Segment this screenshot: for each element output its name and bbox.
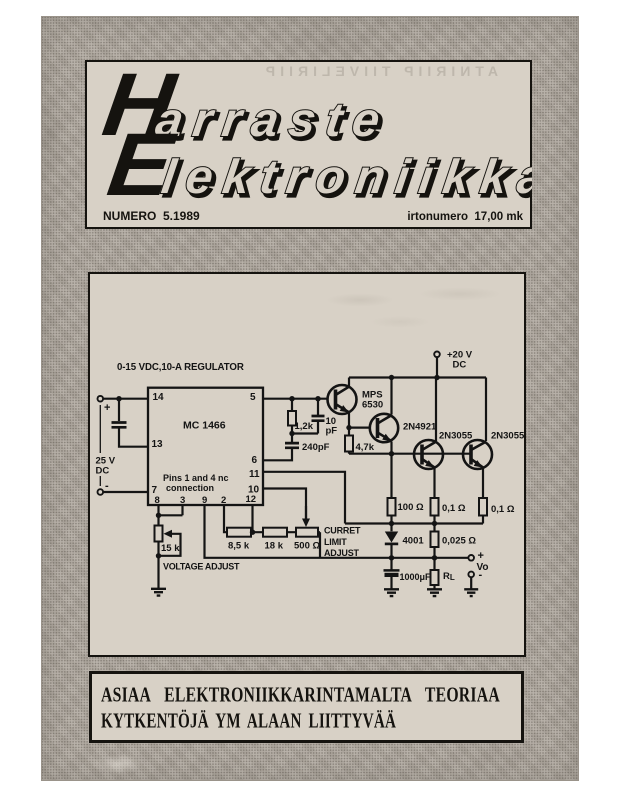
svg-text:5: 5 [250,392,256,403]
svg-text:2N4921: 2N4921 [403,422,437,433]
svg-text:500 Ω: 500 Ω [294,541,320,552]
svg-text:12: 12 [246,494,257,505]
svg-text:DC: DC [453,360,467,371]
svg-text:8: 8 [155,495,160,506]
svg-text:ATNIRIIP TIIVELIRIIP: ATNIRIIP TIIVELIRIIP [261,63,498,79]
svg-text:connection: connection [166,483,214,493]
svg-text:0,1 Ω: 0,1 Ω [491,504,515,515]
svg-text:10: 10 [248,485,260,496]
svg-text:RL: RL [443,571,455,582]
svg-text:VOLTAGE ADJUST: VOLTAGE ADJUST [163,562,240,572]
svg-text:4,7k: 4,7k [356,442,375,453]
svg-text:arraste: arraste [152,93,393,147]
svg-text:6: 6 [252,455,258,466]
svg-text:11: 11 [249,469,260,480]
svg-text:0,025 Ω: 0,025 Ω [442,536,476,547]
svg-text:13: 13 [152,439,164,450]
svg-text:KYTKENTÖJÄ YM ALAAN LIITTYVÄÄ: KYTKENTÖJÄ YM ALAAN LIITTYVÄÄ [101,709,397,732]
svg-text:CURRET: CURRET [324,526,361,536]
svg-text:lektroniikka: lektroniikka [158,150,532,204]
svg-text:14: 14 [153,392,165,403]
svg-text:+: + [104,402,110,414]
svg-text:9: 9 [202,495,207,506]
svg-text:4001: 4001 [403,536,425,547]
svg-text:2N3055: 2N3055 [491,431,525,442]
svg-text:0-15 VDC,10-A REGULATOR: 0-15 VDC,10-A REGULATOR [117,362,244,373]
svg-text:1,2k: 1,2k [295,421,314,432]
svg-text:MC 1466: MC 1466 [183,420,226,432]
svg-text:ASIAA ELEKTRONIIKKARINTAMALTA: ASIAA ELEKTRONIIKKARINTAMALTA TEORIAA [101,683,500,707]
svg-text:-: - [479,569,483,581]
svg-text:0,1 Ω: 0,1 Ω [442,503,466,514]
svg-text:8,5 k: 8,5 k [228,541,250,552]
svg-text:2N3055: 2N3055 [439,431,473,442]
svg-text:6530: 6530 [362,400,383,411]
svg-text:240pF: 240pF [302,442,330,453]
svg-text:Pins 1 and 4 nc: Pins 1 and 4 nc [163,473,229,483]
svg-text:+: + [478,550,484,562]
svg-text:DC: DC [96,466,110,477]
svg-text:3: 3 [180,495,185,506]
svg-text:100 Ω: 100 Ω [398,502,424,513]
svg-text:1000μF: 1000μF [400,572,432,582]
svg-text:-: - [105,480,109,492]
svg-text:pF: pF [326,426,338,437]
svg-text:2: 2 [221,495,226,506]
svg-text:18 k: 18 k [265,541,284,552]
svg-text:irtonumero 17,00 mk: irtonumero 17,00 mk [407,211,523,223]
svg-text:LIMIT: LIMIT [324,537,347,547]
svg-text:NUMERO 5.1989: NUMERO 5.1989 [103,209,200,223]
svg-text:15 k: 15 k [161,543,180,554]
svg-text:ADJUST: ADJUST [324,548,360,558]
